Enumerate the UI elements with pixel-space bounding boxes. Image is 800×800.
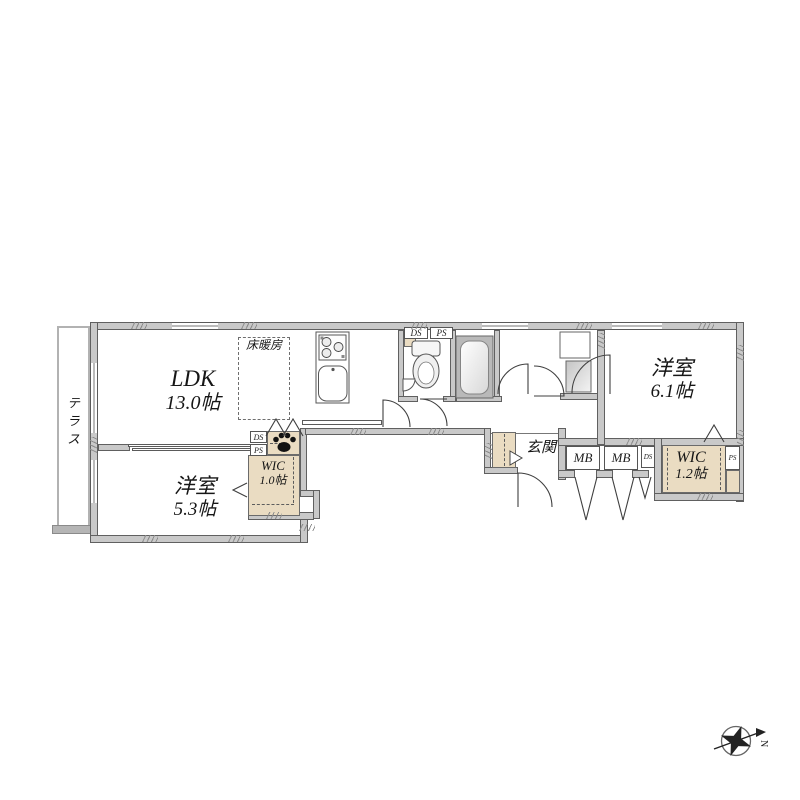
- entrance-step-arrow: [510, 451, 522, 465]
- door-arc-entrance: [518, 473, 552, 507]
- door-arc-ldk: [383, 400, 410, 427]
- folding-door-mb2: [612, 477, 634, 520]
- wic1-opening-arrow: [233, 483, 247, 497]
- fixtures-layer: N: [0, 0, 800, 800]
- toilet-icon: [412, 341, 440, 388]
- folding-door-mb1: [575, 477, 597, 520]
- door-arc-washroom: [534, 366, 564, 396]
- corner-basin-icon: [403, 379, 415, 391]
- compass-rose: N: [714, 720, 769, 761]
- bathtub-icon: [456, 336, 493, 398]
- washing-machine-icon: [566, 361, 591, 392]
- door-arc-toilet: [420, 399, 447, 426]
- compass-north-label: N: [758, 740, 769, 747]
- kitchen-counter: [316, 332, 349, 403]
- vanity-icon: [560, 332, 590, 358]
- compass-arrowhead: [756, 728, 766, 737]
- floor-plan: テラス 床暖房 D: [0, 0, 800, 800]
- folding-door-wic2: [704, 425, 724, 442]
- folding-door-ds: [639, 477, 651, 498]
- door-arc-bath: [498, 364, 528, 394]
- pet-paw-icon: [273, 433, 296, 452]
- sink-icon: [319, 366, 348, 401]
